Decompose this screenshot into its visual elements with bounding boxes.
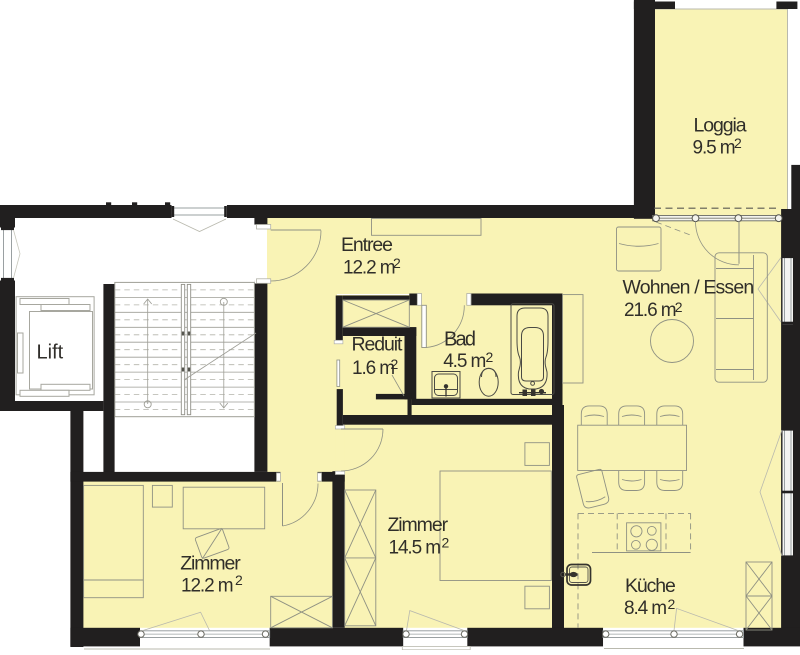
svg-text:8.4 m: 8.4 m	[624, 598, 666, 619]
svg-text:Zimmer: Zimmer	[180, 553, 241, 575]
svg-text:Lift: Lift	[37, 342, 64, 364]
svg-text:2: 2	[393, 255, 401, 271]
svg-text:9.5 m: 9.5 m	[693, 138, 735, 159]
svg-text:Bad: Bad	[444, 328, 475, 350]
svg-text:2: 2	[235, 572, 243, 588]
svg-text:12.2 m: 12.2 m	[343, 258, 395, 279]
svg-text:Entree: Entree	[341, 234, 392, 256]
svg-text:14.5 m: 14.5 m	[389, 538, 441, 559]
svg-text:2: 2	[391, 356, 399, 372]
svg-text:Loggia: Loggia	[694, 115, 747, 137]
svg-text:2: 2	[734, 135, 742, 151]
svg-text:2: 2	[675, 299, 683, 315]
svg-text:12.2 m: 12.2 m	[181, 576, 233, 597]
svg-text:Küche: Küche	[625, 575, 675, 597]
svg-text:Reduit: Reduit	[352, 334, 403, 356]
svg-text:2: 2	[442, 535, 450, 551]
svg-text:2: 2	[668, 596, 676, 612]
svg-text:4.5 m: 4.5 m	[443, 351, 485, 372]
svg-text:1.6 m: 1.6 m	[352, 358, 394, 379]
svg-text:Zimmer: Zimmer	[388, 514, 449, 536]
svg-text:2: 2	[486, 349, 494, 365]
svg-text:21.6 m: 21.6 m	[624, 300, 676, 321]
svg-text:Wohnen / Essen: Wohnen / Essen	[623, 277, 754, 299]
